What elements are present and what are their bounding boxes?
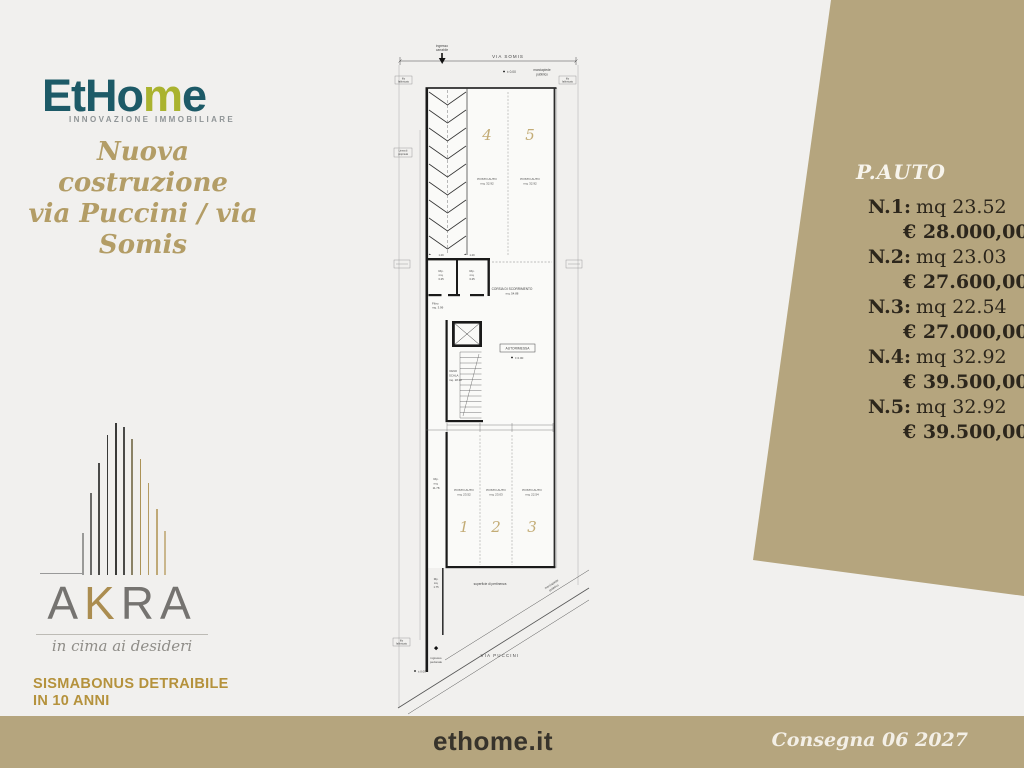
akra-divider — [36, 634, 208, 635]
linea-proprieta-box: Linea di proprietà — [394, 148, 412, 157]
spot5-size: mq. 32.92 — [523, 182, 537, 186]
price-item-4: N.4:mq 32.92 € 39.500,00 — [740, 345, 1024, 395]
svg-text:Rip.: Rip. — [434, 477, 439, 481]
spot3-size: mq. 22.54 — [525, 493, 539, 497]
price-panel-title: P.AUTO — [856, 160, 946, 184]
svg-text:fabbricato: fabbricato — [562, 81, 574, 84]
akra-tagline: in cima ai desideri — [33, 637, 211, 655]
rip-175-label: Rip. mq. 1.75 — [433, 577, 439, 589]
level-marker-dot — [503, 71, 505, 73]
room2-label: Rip.mq.3.25 — [469, 269, 475, 281]
room2-dim: 1.29 — [469, 253, 475, 257]
spot3-label: POSTO AUTO — [522, 488, 542, 492]
marciapiede-top-2: pubblico — [536, 73, 548, 77]
listing-headline: Nuova costruzione via Puccini / via Somi… — [18, 137, 268, 261]
item5-price: € 39.500,00 — [740, 420, 1024, 445]
item1-size: mq 23.52 — [916, 196, 1007, 218]
svg-text:mq.: mq. — [434, 482, 439, 486]
footer-bar: ethome.it Consegna 06 2027 — [0, 716, 1024, 768]
spot4-label: POSTO AUTO — [477, 177, 497, 181]
marciapiede-top-1: marciapiede — [533, 68, 551, 72]
lower-strip-wall — [442, 568, 444, 635]
item4-label: N.4: — [868, 346, 911, 368]
akra-skyline-logo — [82, 423, 166, 575]
ethome-tagline: INNOVAZIONE IMMOBILIARE — [69, 115, 235, 124]
item4-size: mq 32.92 — [916, 346, 1007, 368]
price-item-5: N.5:mq 32.92 € 39.500,00 — [740, 395, 1024, 445]
svg-text:1.75: 1.75 — [433, 585, 439, 589]
spot2-size: mq. 23.03 — [489, 493, 503, 497]
svg-text:11.78: 11.78 — [433, 486, 440, 490]
corsia-label-1: CORSIA DI SCORRIMENTO — [492, 287, 533, 291]
item2-size: mq 23.03 — [916, 246, 1007, 268]
logo-text-1: EtHo — [42, 70, 143, 121]
filo-fabbricato-box-right: filo fabbricato — [559, 76, 576, 84]
svg-text:VANO: VANO — [449, 369, 458, 373]
price-list: N.1:mq 23.52 € 28.000,00 N.2:mq 23.03 € … — [740, 195, 1024, 445]
svg-text:SCALA: SCALA — [449, 374, 459, 378]
spot1-label: POSTO AUTO — [454, 488, 474, 492]
price-item-1: N.1:mq 23.52 € 28.000,00 — [740, 195, 1024, 245]
price-item-2: N.2:mq 23.03 € 27.600,00 — [740, 245, 1024, 295]
building-bottom-wall — [446, 566, 556, 568]
via-somis-label: VIA SOMIS — [492, 54, 524, 59]
superficie-label: superficie di pertinenza — [474, 582, 507, 586]
filtro-label-2: mq. 3.99 — [432, 306, 444, 310]
item2-price: € 27.600,00 — [740, 270, 1024, 295]
item4-price: € 39.500,00 — [740, 370, 1024, 395]
stair-bottom-wall — [446, 420, 484, 422]
item5-label: N.5: — [868, 396, 911, 418]
headline-line2: via Puccini / via Somis — [18, 199, 268, 261]
top-wall — [426, 87, 557, 89]
ingresso-pedonale-2: pedonale — [430, 660, 442, 664]
svg-text:fabbricato: fabbricato — [398, 81, 410, 84]
akra-ground-line — [40, 573, 84, 574]
spot-number-4: 4 — [481, 126, 492, 144]
spot-number-2: 2 — [490, 518, 501, 536]
item1-price: € 28.000,00 — [740, 220, 1024, 245]
promo-line2: IN 10 ANNI — [33, 693, 229, 710]
price-item-3: N.3:mq 22.54 € 27.000,00 — [740, 295, 1024, 345]
akra-wordmark: AKRA — [33, 576, 211, 630]
right-wall — [554, 88, 556, 568]
svg-text:mq.: mq. — [434, 582, 439, 585]
quota-zero-bottom: ± 0.00 — [418, 670, 426, 674]
logo-text-3: e — [182, 70, 206, 121]
item3-size: mq 22.54 — [916, 296, 1007, 318]
svg-text:Rip.: Rip. — [434, 577, 439, 581]
svg-text:mq. 18.32: mq. 18.32 — [449, 378, 462, 382]
logo-text-2: m — [143, 70, 182, 121]
pedestrian-entrance-marker — [434, 646, 438, 650]
price-panel: P.AUTO N.1:mq 23.52 € 28.000,00 N.2:mq 2… — [740, 0, 1024, 600]
akra-letter-k: K — [84, 577, 121, 629]
stair-left-wall — [446, 320, 448, 422]
footer-website: ethome.it — [433, 726, 553, 757]
spot4-size: mq. 32.92 — [480, 182, 494, 186]
item3-price: € 27.000,00 — [740, 320, 1024, 345]
room1-dim: 1.29 — [438, 253, 444, 257]
room1-label: Rip.mq.3.25 — [438, 269, 444, 281]
strip-wall — [446, 432, 448, 568]
svg-text:proprietà: proprietà — [398, 153, 408, 156]
marciapiede-bottom-label: marciapiede pubblico — [544, 578, 562, 594]
svg-text:3.25: 3.25 — [438, 277, 444, 281]
svg-text:AUTORIMESSA: AUTORIMESSA — [506, 347, 531, 351]
footer-delivery-date: Consegna 06 2027 — [772, 729, 968, 751]
level-marker-dot-2 — [511, 357, 513, 359]
rooms-right-wall — [488, 260, 490, 296]
akra-letters-ra: RA — [121, 577, 197, 629]
akra-letter-a: A — [47, 577, 84, 629]
ingresso-carrabile-label-2: carrabile — [436, 48, 448, 52]
floor-plan-svg: VIA SOMIS ingresso carrabile ± 0.00 marc… — [390, 40, 590, 715]
quota-zero-mid: ± 0.00 — [515, 356, 524, 360]
spot-number-1: 1 — [459, 518, 469, 536]
item2-label: N.2: — [868, 246, 911, 268]
item3-label: N.3: — [868, 296, 911, 318]
quota-zero-top: ± 0.00 — [507, 70, 516, 74]
via-puccini-label: VIA PUCCINI — [481, 653, 520, 658]
filo-fabbricato-box-bottom: filo fabbricato — [393, 638, 410, 646]
svg-text:fabbricato: fabbricato — [396, 643, 408, 646]
promo-line1: SISMABONUS DETRAIBILE — [33, 676, 229, 693]
sismabonus-note: SISMABONUS DETRAIBILE IN 10 ANNI — [33, 676, 229, 710]
level-marker-dot-3 — [414, 670, 416, 672]
spot-number-3: 3 — [527, 518, 537, 536]
rooms-divider-wall — [456, 260, 458, 294]
spot2-label: POSTO AUTO — [486, 488, 506, 492]
headline-line1: Nuova costruzione — [18, 137, 268, 199]
item1-label: N.1: — [868, 196, 911, 218]
filo-fabbricato-box-left: filo fabbricato — [395, 76, 412, 84]
item5-size: mq 32.92 — [916, 396, 1007, 418]
spot1-size: mq. 23.52 — [457, 493, 471, 497]
left-wall — [426, 88, 429, 672]
spot5-label: POSTO AUTO — [520, 177, 540, 181]
rooms-bottom-walls — [429, 294, 485, 296]
corsia-label-2: mq. 54.88 — [506, 292, 519, 296]
entrance-arrow-icon — [439, 53, 446, 64]
spot-number-5: 5 — [525, 126, 535, 144]
svg-text:3.25: 3.25 — [469, 277, 475, 281]
